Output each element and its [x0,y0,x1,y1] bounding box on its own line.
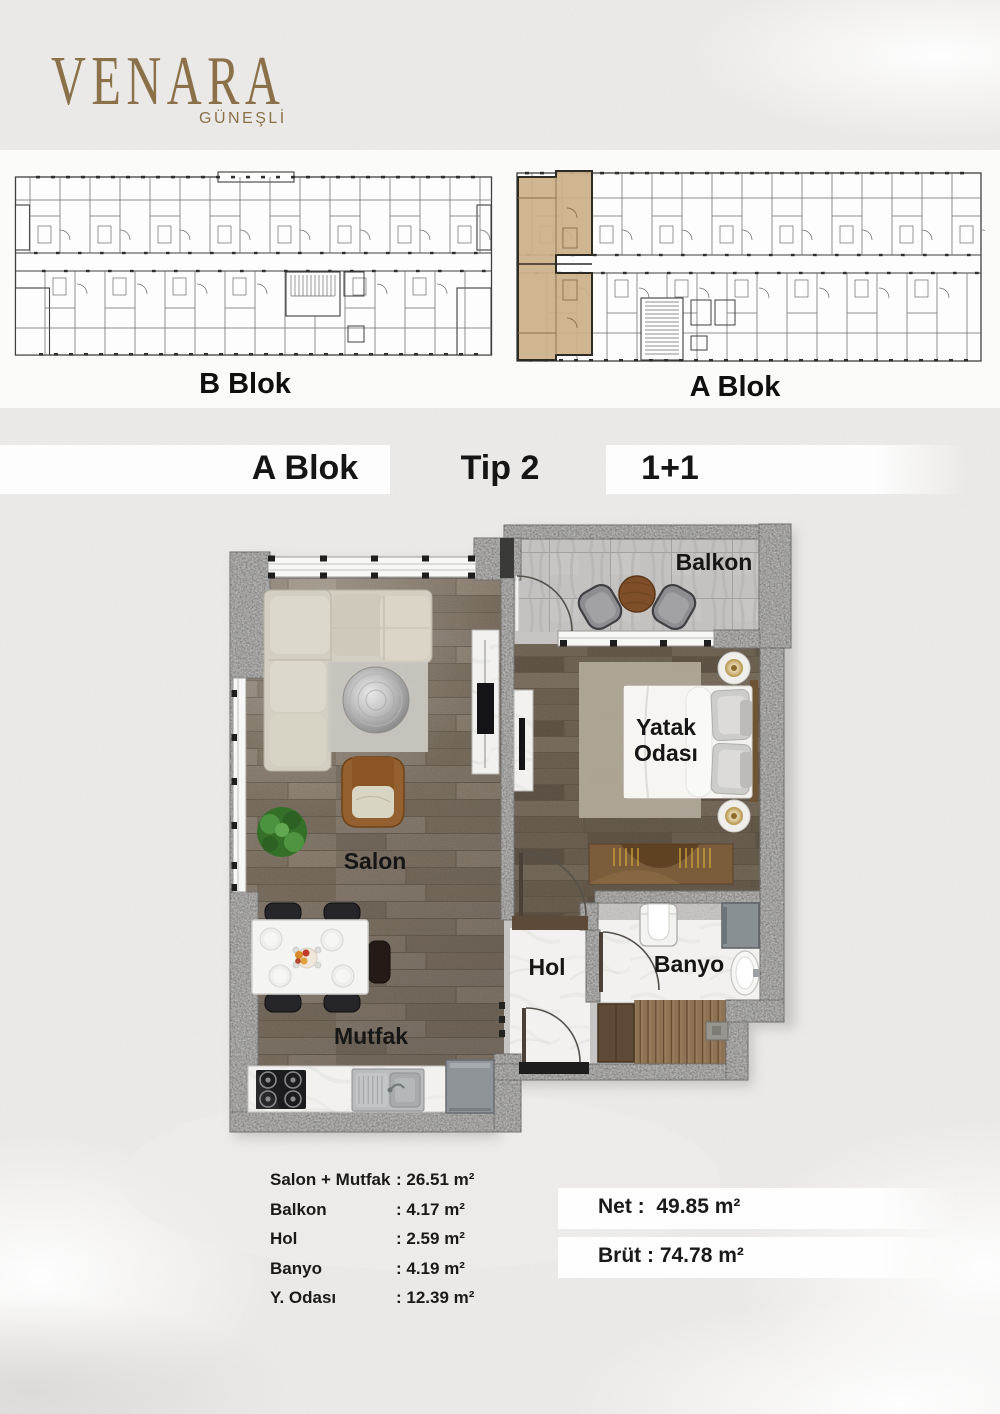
svg-text:GÜNEŞLİ: GÜNEŞLİ [199,108,287,127]
svg-text:Banyo: Banyo [654,951,724,977]
svg-text:VENARA: VENARA [51,42,285,120]
svg-text:Hol: Hol [528,954,565,980]
svg-text:Odası: Odası [634,740,698,766]
svg-text:Balkon: Balkon [676,549,753,575]
svg-text:Yatak: Yatak [636,714,696,740]
svg-text:Salon: Salon [344,848,407,874]
svg-text:Mutfak: Mutfak [334,1023,408,1049]
